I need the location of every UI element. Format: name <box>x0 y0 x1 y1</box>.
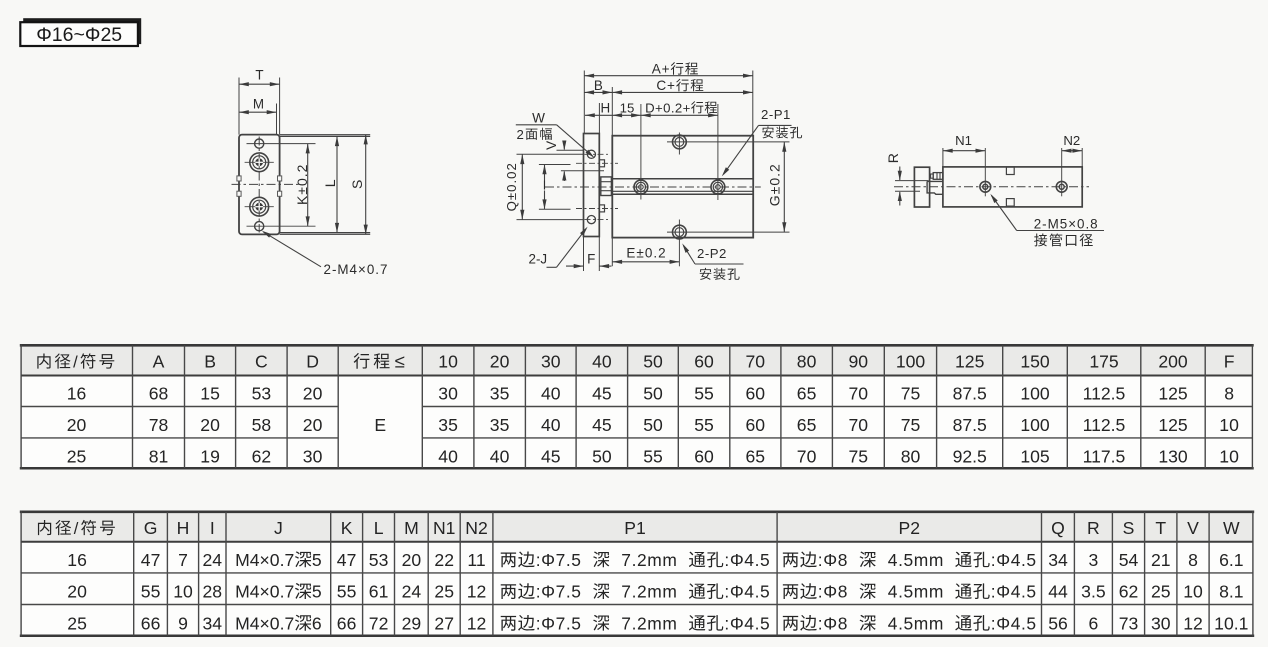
svg-text:47: 47 <box>141 550 161 570</box>
svg-text:M4×0.7: M4×0.7 <box>235 550 294 570</box>
svg-text:5: 5 <box>312 582 322 602</box>
svg-text:4.5mm: 4.5mm <box>888 550 944 570</box>
svg-text:65: 65 <box>797 383 817 403</box>
svg-text:25: 25 <box>434 582 454 602</box>
svg-text:7.2mm: 7.2mm <box>621 613 677 633</box>
svg-text:75: 75 <box>901 383 921 403</box>
svg-text::Φ8: :Φ8 <box>818 550 848 570</box>
svg-text:K±0.2: K±0.2 <box>294 164 310 205</box>
svg-text:35: 35 <box>490 383 510 403</box>
svg-text:87.5: 87.5 <box>953 415 987 435</box>
svg-text:S: S <box>1123 518 1135 538</box>
svg-text:15: 15 <box>620 100 635 115</box>
svg-text:87.5: 87.5 <box>953 383 987 403</box>
svg-text:73: 73 <box>1119 613 1139 633</box>
svg-text:54: 54 <box>1119 550 1139 570</box>
svg-text:M: M <box>253 97 264 112</box>
svg-text:20: 20 <box>402 550 422 570</box>
svg-text:53: 53 <box>369 550 389 570</box>
svg-text:16: 16 <box>67 550 87 570</box>
svg-text:T: T <box>1155 518 1166 538</box>
svg-text:27: 27 <box>434 613 454 633</box>
svg-text:N1: N1 <box>433 518 456 538</box>
svg-text:24: 24 <box>402 582 422 602</box>
svg-text::Φ7.5: :Φ7.5 <box>536 613 582 633</box>
svg-text:50: 50 <box>592 447 612 467</box>
svg-text:I: I <box>543 179 546 193</box>
svg-text:34: 34 <box>1048 550 1068 570</box>
svg-text:25: 25 <box>1151 582 1171 602</box>
svg-text:20: 20 <box>303 383 323 403</box>
svg-text:K: K <box>341 518 353 538</box>
svg-text:6: 6 <box>1089 613 1099 633</box>
svg-text:60: 60 <box>694 351 714 371</box>
svg-text:M: M <box>404 518 419 538</box>
svg-text:130: 130 <box>1158 447 1188 467</box>
svg-text:40: 40 <box>541 415 561 435</box>
svg-text:G: G <box>144 518 158 538</box>
svg-text:L: L <box>322 179 338 187</box>
svg-text:58: 58 <box>252 415 272 435</box>
svg-text:22: 22 <box>434 550 454 570</box>
svg-text:34: 34 <box>203 613 223 633</box>
svg-text:L: L <box>374 518 384 538</box>
svg-text:12: 12 <box>467 613 487 633</box>
svg-text:30: 30 <box>1151 613 1171 633</box>
svg-text:60: 60 <box>746 383 766 403</box>
svg-text:/: / <box>74 520 81 538</box>
svg-text:B: B <box>594 78 603 93</box>
svg-text:90: 90 <box>849 351 869 371</box>
svg-text:S: S <box>349 180 365 189</box>
svg-text:20: 20 <box>490 351 510 371</box>
svg-text:35: 35 <box>490 415 510 435</box>
svg-text:G±0.2: G±0.2 <box>766 163 782 206</box>
svg-text:65: 65 <box>746 447 766 467</box>
svg-text:P2: P2 <box>899 518 921 538</box>
svg-text:40: 40 <box>438 447 458 467</box>
svg-text:50: 50 <box>643 415 663 435</box>
svg-text:3.5: 3.5 <box>1081 582 1106 602</box>
svg-text:R: R <box>1087 518 1100 538</box>
svg-text:66: 66 <box>337 613 357 633</box>
svg-text:40: 40 <box>490 447 510 467</box>
svg-text:E±0.2: E±0.2 <box>626 246 666 261</box>
svg-text:92.5: 92.5 <box>953 447 987 467</box>
svg-text:28: 28 <box>203 582 223 602</box>
svg-text:20: 20 <box>200 415 220 435</box>
svg-text:/: / <box>73 353 80 371</box>
svg-text:15: 15 <box>200 383 220 403</box>
svg-text:125: 125 <box>1158 383 1188 403</box>
svg-text:7.2mm: 7.2mm <box>621 550 677 570</box>
svg-text:5: 5 <box>312 550 322 570</box>
svg-text:72: 72 <box>369 613 389 633</box>
svg-text:40: 40 <box>541 383 561 403</box>
svg-text:F: F <box>587 252 595 267</box>
svg-text:75: 75 <box>849 447 869 467</box>
svg-text:8.1: 8.1 <box>1219 582 1243 602</box>
svg-text:10: 10 <box>438 351 458 371</box>
svg-text:45: 45 <box>592 415 612 435</box>
svg-text:J: J <box>274 518 283 538</box>
svg-text:117.5: 117.5 <box>1083 447 1126 467</box>
svg-text:Φ16~Φ25: Φ16~Φ25 <box>36 24 122 46</box>
svg-text:2-M5×0.8: 2-M5×0.8 <box>1034 217 1099 232</box>
svg-text:44: 44 <box>1048 582 1068 602</box>
svg-text:62: 62 <box>252 447 272 467</box>
svg-text:R: R <box>885 153 901 163</box>
svg-text::Φ4.5: :Φ4.5 <box>991 582 1037 602</box>
svg-text:T: T <box>255 68 263 83</box>
svg-text:19: 19 <box>200 447 220 467</box>
svg-text:50: 50 <box>643 351 663 371</box>
svg-text:75: 75 <box>901 415 921 435</box>
svg-text:W: W <box>1223 518 1240 538</box>
svg-text:16: 16 <box>67 383 87 403</box>
svg-text:65: 65 <box>797 415 817 435</box>
svg-text:61: 61 <box>369 582 389 602</box>
svg-text:25: 25 <box>67 613 87 633</box>
svg-text:10: 10 <box>1219 415 1239 435</box>
svg-text:V: V <box>544 141 559 150</box>
svg-text::Φ4.5: :Φ4.5 <box>724 582 770 602</box>
svg-text:55: 55 <box>141 582 161 602</box>
svg-text:12: 12 <box>467 582 487 602</box>
svg-text:A+: A+ <box>652 62 671 77</box>
svg-text:68: 68 <box>149 383 169 403</box>
svg-text:P1: P1 <box>624 518 646 538</box>
svg-text:105: 105 <box>1020 447 1050 467</box>
svg-text:35: 35 <box>438 415 458 435</box>
svg-text:6.1: 6.1 <box>1219 550 1243 570</box>
svg-text:I: I <box>210 518 215 538</box>
svg-text::Φ7.5: :Φ7.5 <box>536 582 582 602</box>
svg-text:70: 70 <box>849 383 869 403</box>
svg-text:2-M4×0.7: 2-M4×0.7 <box>324 262 389 277</box>
svg-text:20: 20 <box>67 582 87 602</box>
svg-text:M4×0.7: M4×0.7 <box>235 613 294 633</box>
svg-text:80: 80 <box>797 351 817 371</box>
svg-text::Φ7.5: :Φ7.5 <box>536 550 582 570</box>
svg-text:Q: Q <box>1051 518 1065 538</box>
svg-text:D+0.2+: D+0.2+ <box>645 100 691 115</box>
svg-text:29: 29 <box>402 613 422 633</box>
svg-text:30: 30 <box>541 351 561 371</box>
svg-text:2-P1: 2-P1 <box>761 107 791 122</box>
svg-text::Φ8: :Φ8 <box>818 613 848 633</box>
svg-text:Q±0.02: Q±0.02 <box>504 162 519 211</box>
svg-text:20: 20 <box>303 415 323 435</box>
svg-text:N2: N2 <box>1063 133 1080 148</box>
svg-text:7: 7 <box>178 550 188 570</box>
svg-text:62: 62 <box>1119 582 1139 602</box>
svg-text:53: 53 <box>252 383 272 403</box>
svg-text:125: 125 <box>955 351 985 371</box>
svg-text:45: 45 <box>592 383 612 403</box>
svg-text:H: H <box>600 100 610 115</box>
svg-text:125: 125 <box>1158 415 1188 435</box>
svg-text:3: 3 <box>1089 550 1099 570</box>
svg-text:175: 175 <box>1089 351 1119 371</box>
svg-text:56: 56 <box>1048 613 1068 633</box>
svg-text:47: 47 <box>337 550 357 570</box>
svg-text:12: 12 <box>1183 613 1203 633</box>
svg-text:4.5mm: 4.5mm <box>888 582 944 602</box>
svg-text:2-P2: 2-P2 <box>697 246 727 261</box>
svg-text:60: 60 <box>746 415 766 435</box>
svg-text:100: 100 <box>1020 383 1050 403</box>
svg-text:≤: ≤ <box>395 350 405 371</box>
svg-text:50: 50 <box>643 383 663 403</box>
svg-text:10: 10 <box>1219 447 1239 467</box>
svg-text:C+: C+ <box>656 78 675 93</box>
svg-text:2: 2 <box>517 127 526 142</box>
svg-text:8: 8 <box>1188 550 1198 570</box>
svg-text:40: 40 <box>592 351 612 371</box>
svg-text:2-J: 2-J <box>529 252 548 267</box>
svg-text:55: 55 <box>643 447 663 467</box>
svg-text:66: 66 <box>141 613 161 633</box>
svg-text:78: 78 <box>149 415 169 435</box>
svg-text:45: 45 <box>541 447 561 467</box>
svg-text::Φ8: :Φ8 <box>818 582 848 602</box>
svg-text:F: F <box>1224 351 1235 371</box>
svg-text:N2: N2 <box>465 518 488 538</box>
svg-text:6: 6 <box>312 613 322 633</box>
svg-text:30: 30 <box>438 383 458 403</box>
svg-text:4.5mm: 4.5mm <box>888 613 944 633</box>
svg-text:55: 55 <box>337 582 357 602</box>
svg-text:25: 25 <box>67 447 87 467</box>
svg-text:80: 80 <box>901 447 921 467</box>
svg-text:B: B <box>204 351 216 371</box>
svg-text:7.2mm: 7.2mm <box>621 582 677 602</box>
svg-text:70: 70 <box>746 351 766 371</box>
svg-text:112.5: 112.5 <box>1083 383 1126 403</box>
svg-text:10: 10 <box>1183 582 1203 602</box>
svg-text:E: E <box>374 415 386 435</box>
svg-text:A: A <box>153 351 165 371</box>
svg-text:81: 81 <box>149 447 169 467</box>
svg-text::Φ4.5: :Φ4.5 <box>724 613 770 633</box>
svg-text:8: 8 <box>1224 383 1234 403</box>
svg-text::Φ4.5: :Φ4.5 <box>991 550 1037 570</box>
svg-text:H: H <box>177 518 190 538</box>
svg-text:150: 150 <box>1020 351 1050 371</box>
svg-text:100: 100 <box>1020 415 1050 435</box>
svg-text:C: C <box>255 351 268 371</box>
svg-text:70: 70 <box>849 415 869 435</box>
svg-text:D: D <box>306 351 319 371</box>
svg-text::Φ4.5: :Φ4.5 <box>991 613 1037 633</box>
svg-text:M4×0.7: M4×0.7 <box>235 582 294 602</box>
svg-text:200: 200 <box>1158 351 1188 371</box>
svg-text:60: 60 <box>694 447 714 467</box>
svg-text:10: 10 <box>173 582 193 602</box>
svg-text:9: 9 <box>178 613 188 633</box>
svg-text:30: 30 <box>303 447 323 467</box>
svg-text:112.5: 112.5 <box>1083 415 1126 435</box>
svg-text:55: 55 <box>694 383 714 403</box>
svg-text:21: 21 <box>1151 550 1171 570</box>
svg-text:11: 11 <box>467 550 485 570</box>
svg-text:55: 55 <box>694 415 714 435</box>
svg-text:N1: N1 <box>955 133 972 148</box>
svg-text:10.1: 10.1 <box>1214 613 1248 633</box>
svg-text:W: W <box>532 110 545 125</box>
svg-text:70: 70 <box>797 447 817 467</box>
svg-text:V: V <box>1187 518 1199 538</box>
svg-text:20: 20 <box>67 415 87 435</box>
svg-text:100: 100 <box>896 351 926 371</box>
svg-text::Φ4.5: :Φ4.5 <box>724 550 770 570</box>
svg-text:24: 24 <box>203 550 223 570</box>
